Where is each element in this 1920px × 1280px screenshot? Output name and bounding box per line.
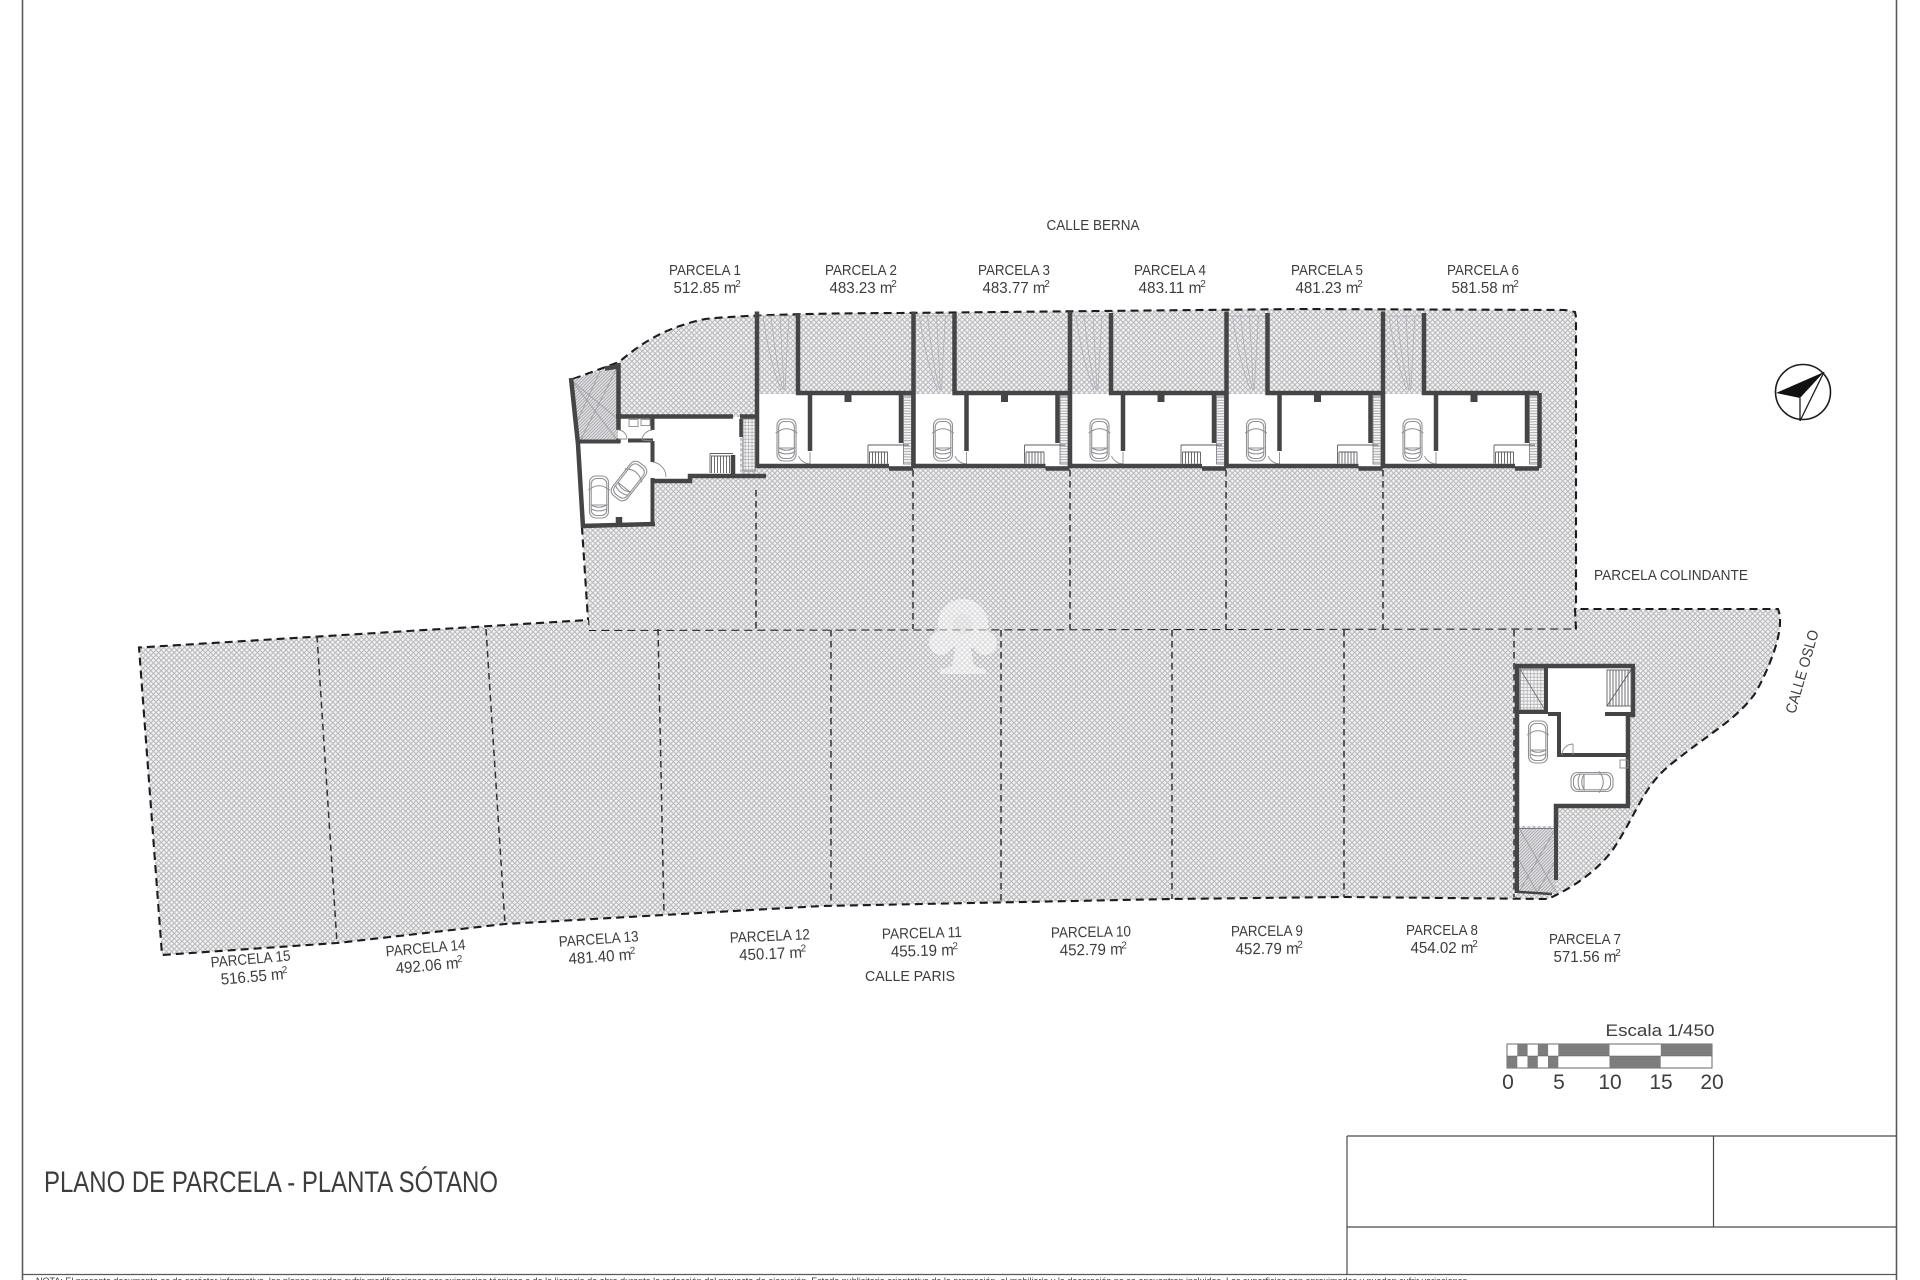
svg-text:20: 20 bbox=[1700, 1071, 1723, 1094]
svg-text:452.79 m: 452.79 m bbox=[1060, 941, 1123, 959]
svg-text:PARCELA 3: PARCELA 3 bbox=[978, 262, 1050, 279]
svg-text:450.17 m: 450.17 m bbox=[739, 945, 803, 965]
svg-text:2: 2 bbox=[1121, 940, 1127, 951]
svg-text:PARCELA 6: PARCELA 6 bbox=[1447, 262, 1519, 279]
svg-text:CALLE BERNA: CALLE BERNA bbox=[1047, 217, 1140, 234]
svg-text:2: 2 bbox=[952, 941, 958, 952]
svg-text:2: 2 bbox=[1357, 279, 1363, 290]
svg-text:2: 2 bbox=[1297, 940, 1303, 951]
svg-text:2: 2 bbox=[1200, 279, 1206, 290]
svg-text:PARCELA COLINDANTE: PARCELA COLINDANTE bbox=[1594, 567, 1748, 584]
svg-text:2: 2 bbox=[1513, 279, 1519, 290]
svg-text:PARCELA 5: PARCELA 5 bbox=[1291, 262, 1363, 279]
svg-text:PARCELA 2: PARCELA 2 bbox=[825, 262, 897, 279]
svg-text:455.19 m: 455.19 m bbox=[891, 942, 954, 961]
svg-text:PARCELA 1: PARCELA 1 bbox=[669, 262, 741, 279]
svg-text:2: 2 bbox=[1472, 939, 1478, 950]
svg-text:452.79 m: 452.79 m bbox=[1236, 941, 1299, 959]
svg-text:PARCELA 12: PARCELA 12 bbox=[729, 926, 810, 946]
svg-text:571.56 m: 571.56 m bbox=[1554, 949, 1617, 966]
svg-text:481.23 m: 481.23 m bbox=[1296, 280, 1359, 297]
svg-text:512.85 m: 512.85 m bbox=[674, 280, 737, 297]
svg-text:PARCELA 10: PARCELA 10 bbox=[1051, 923, 1131, 941]
svg-text:483.77 m: 483.77 m bbox=[983, 280, 1046, 297]
svg-text:454.02 m: 454.02 m bbox=[1411, 940, 1474, 957]
svg-text:PARCELA 4: PARCELA 4 bbox=[1134, 262, 1206, 279]
svg-text:NOTA: El presente documento es: NOTA: El presente documento es de caráct… bbox=[36, 1276, 1470, 1280]
svg-text:581.58 m: 581.58 m bbox=[1452, 280, 1515, 297]
svg-text:2: 2 bbox=[735, 279, 741, 290]
svg-text:0: 0 bbox=[1502, 1071, 1514, 1094]
svg-text:483.11 m: 483.11 m bbox=[1139, 280, 1202, 297]
svg-text:2: 2 bbox=[800, 943, 806, 954]
svg-text:PLANO DE PARCELA - PLANTA SÓTA: PLANO DE PARCELA - PLANTA SÓTANO bbox=[44, 1166, 498, 1199]
svg-text:PARCELA 7: PARCELA 7 bbox=[1549, 931, 1621, 948]
svg-text:2: 2 bbox=[1044, 279, 1050, 290]
svg-text:2: 2 bbox=[1615, 948, 1621, 959]
svg-text:Escala 1/450: Escala 1/450 bbox=[1606, 1021, 1715, 1040]
svg-text:2: 2 bbox=[891, 279, 897, 290]
svg-text:5: 5 bbox=[1553, 1071, 1565, 1094]
svg-text:10: 10 bbox=[1598, 1071, 1621, 1094]
svg-text:15: 15 bbox=[1649, 1071, 1672, 1094]
svg-text:PARCELA 9: PARCELA 9 bbox=[1231, 923, 1303, 941]
svg-text:PARCELA 8: PARCELA 8 bbox=[1406, 922, 1478, 939]
svg-text:CALLE PARIS: CALLE PARIS bbox=[865, 968, 955, 985]
svg-text:483.23 m: 483.23 m bbox=[830, 280, 893, 297]
svg-text:PARCELA 11: PARCELA 11 bbox=[882, 924, 962, 943]
